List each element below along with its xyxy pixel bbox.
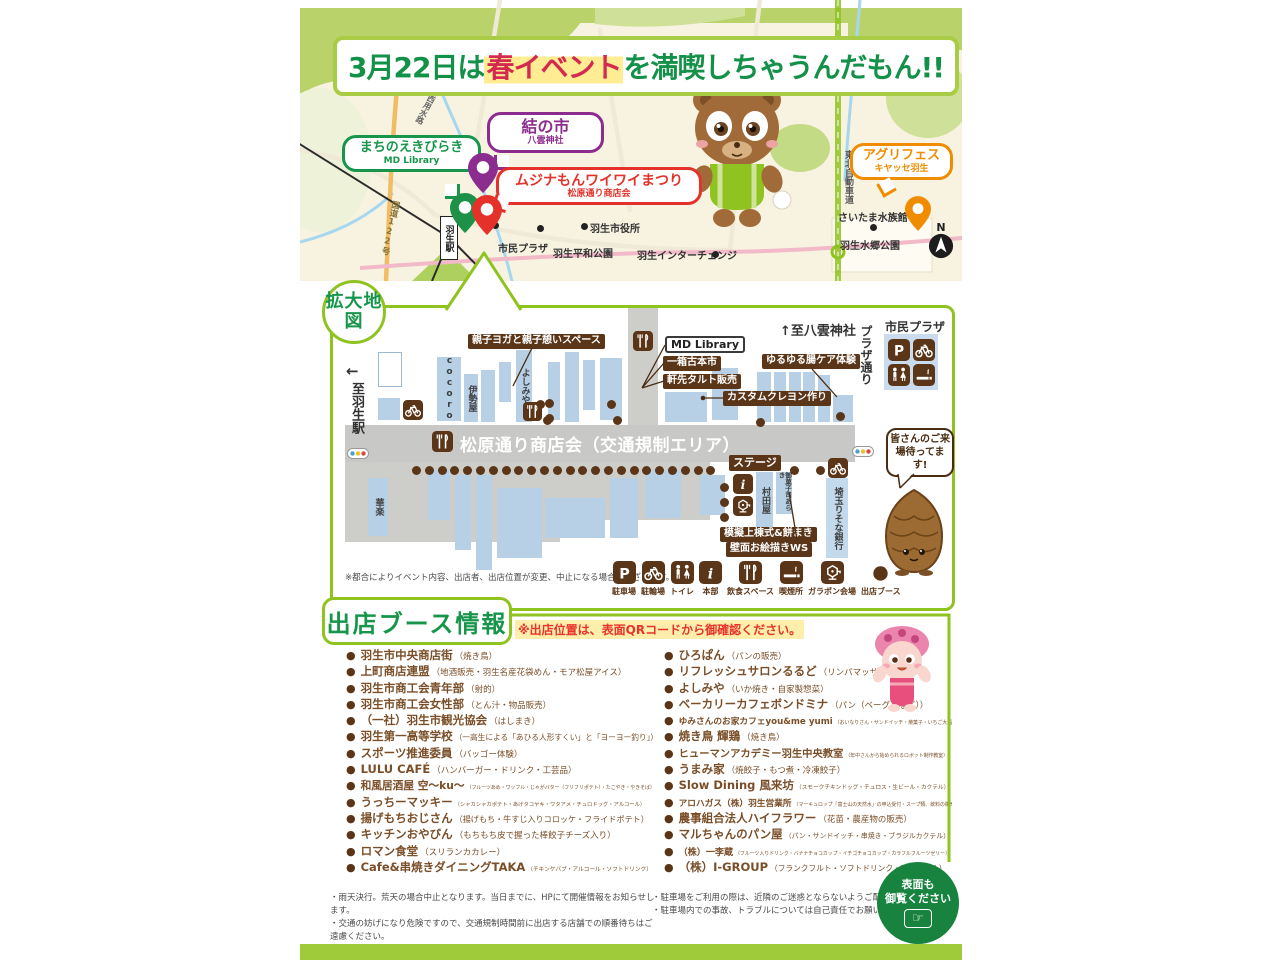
booth-note: （揚げもち・牛すじ入りコロッケ・フライドポテト） — [455, 814, 649, 824]
legend-item: 飲食スペース — [727, 561, 774, 597]
event-label-hekimen: 壁面お絵描きWS — [726, 542, 812, 557]
booth-bullet: ● — [664, 845, 674, 858]
bicycle-icon — [828, 458, 848, 478]
booth-item: ●LULU CAFÉ（ハンバーガー・ドリンク・工芸品） — [346, 760, 658, 776]
building — [481, 370, 495, 422]
building-label: 御菓子司あらき — [778, 472, 791, 514]
building — [545, 498, 605, 538]
title-date: 3月22日は — [348, 46, 484, 86]
event-bubble-mujinamon-fes: ムジナもんワイワイまつり 松原通り商店会 — [496, 167, 702, 205]
shimin-plaza-icons: P — [884, 334, 938, 390]
booth-dot — [836, 412, 845, 421]
booth-dot — [553, 466, 562, 475]
booth-section-heading: 出店ブース情報 — [322, 597, 512, 645]
legend-icon — [671, 561, 694, 584]
building-resona: 埼玉りそな銀行 — [826, 478, 848, 558]
booth-bullet: ● — [346, 763, 356, 776]
footer-note: ・雨天決行。荒天の場合中止となります。当日までに、HPにて開催情報をお知らせしま… — [330, 892, 660, 918]
booth-dot — [756, 418, 765, 427]
booth-item: ●（一社）羽生市観光協会（はしまき） — [346, 711, 658, 727]
booth-bullet: ● — [664, 828, 674, 841]
booth-name: キッチンおやびん — [361, 827, 453, 841]
booth-dot — [617, 466, 626, 475]
plaza-street-label: プラザ通り — [858, 325, 875, 385]
building-label: 村田屋 — [760, 487, 769, 514]
building-label: 伊勢屋 — [467, 385, 476, 412]
booth-note: （花苗・農産物の販売） — [818, 815, 912, 825]
booth-dot — [630, 466, 639, 475]
building — [476, 475, 492, 570]
booth-name: マルちゃんのパン屋 — [679, 827, 783, 841]
legend-icon: P — [613, 561, 636, 584]
bicycle-icon — [403, 400, 423, 420]
svg-text:i: i — [708, 566, 713, 582]
booth-note: （焼餃子・もつ煮・冷凍餃子） — [727, 766, 846, 776]
event-label-yuruyuru: ゆるゆる腸ケア体験 — [762, 354, 860, 369]
booth-bullet: ● — [664, 763, 674, 776]
booth-dot — [566, 466, 575, 475]
booth-note: （もちもち皮で握った棒餃子チーズ入り） — [455, 831, 616, 841]
booth-name: Cafe&串焼きダイニングTAKA — [361, 860, 526, 874]
info-icon: i — [733, 474, 753, 494]
booth-bullet: ● — [346, 779, 356, 792]
legend-label: 駐輪場 — [641, 586, 665, 597]
event-title: 結の市 — [496, 118, 595, 136]
booth-dot — [438, 466, 447, 475]
booth-dot — [425, 466, 434, 475]
event-title: ムジナもんワイワイまつり — [505, 173, 693, 189]
booth-dot — [412, 466, 421, 475]
booth-name: Slow Dining 風来坊 — [679, 778, 794, 792]
map-legend: P 駐車場 駐輪場 トイレ i 本部 飲食スペース — [612, 561, 957, 597]
legend-icon — [642, 561, 665, 584]
food-icon — [432, 431, 453, 452]
booth-item: ●ヒューマンアカデミー羽生中央教室（年中さんから始められるロボット制作教室） — [664, 744, 952, 760]
legend-icon — [869, 561, 892, 584]
map-pin-red — [472, 194, 502, 236]
booth-item: ●羽生市商工会女性部（とん汁・物品販売） — [346, 695, 658, 711]
booth-dot — [681, 466, 690, 475]
booth-note: （スリランカカレー） — [420, 848, 505, 858]
booth-item: ●スポーツ推進委員（バッゴー体験） — [346, 744, 658, 760]
booth-name: ロマン食堂 — [361, 844, 419, 858]
booth-name: よしみや — [679, 681, 725, 695]
event-label-mogi: 模擬上棟式&餅まき — [720, 527, 817, 542]
booth-item: ●マルちゃんのパン屋（パン・サンドイッチ・串焼き・ブラジルカクテル） — [664, 825, 952, 841]
booth-note: （フルーツ入りドリンク・バナナチョコカップ・イチゴチョコカップ・カラフルフルーツ… — [735, 851, 950, 857]
place-label-interchange: 羽生インターチェンジ — [637, 247, 737, 262]
legend-icon — [739, 561, 762, 584]
booth-name: LULU CAFÉ — [361, 762, 431, 776]
legend-label: 駐車場 — [612, 586, 636, 597]
legend-item: 駐輪場 — [641, 561, 665, 597]
place-dot — [870, 224, 877, 231]
event-bubble-agrifes: アグリフェス キヤッセ羽生 — [850, 143, 953, 180]
place-label-shimin-plaza: 市民プラザ — [498, 240, 548, 255]
booth-dot — [816, 466, 825, 475]
booth-item: ●焼き鳥 輝鶏（焼き鳥） — [664, 727, 952, 743]
svg-text:P: P — [619, 566, 630, 582]
legend-icon — [821, 561, 844, 584]
booth-dot — [720, 498, 729, 507]
bicycle-icon — [913, 339, 935, 361]
flyer-page: 3月22日は春イベントを満喫しちゃうんだもん!! まちのえきびらき MD Lib… — [0, 0, 1280, 960]
booth-name: アロハガス（株）羽生営業所 — [679, 799, 792, 809]
building-araki: 御菓子司あらき — [776, 472, 792, 514]
booth-name: （一社）羽生市観光協会 — [361, 713, 488, 727]
legend-label: トイレ — [670, 586, 694, 597]
booth-item: ●羽生市商工会青年部（射的） — [346, 679, 658, 695]
booth-item: ●うまみ家（焼餃子・もつ煮・冷凍餃子） — [664, 760, 952, 776]
booth-name: 羽生市商工会女性部 — [361, 697, 465, 711]
flyer: 3月22日は春イベントを満喫しちゃうんだもん!! まちのえきびらき MD Lib… — [300, 0, 962, 960]
booth-item: ●うっちーマッキー（シャカシャカポテト・あげタコヤキ・ワタアメ・チュロドッグ・ア… — [346, 793, 658, 809]
event-label-furuhon: 一箱古本市 — [663, 356, 721, 371]
booth-bullet: ● — [664, 779, 674, 792]
legend-item: 喫煙所 — [779, 561, 803, 597]
place-label-city-hall: 羽生市役所 — [590, 220, 640, 235]
legend-icon: i — [699, 561, 722, 584]
legend-item: i 本部 — [699, 561, 722, 597]
booth-note: （年中さんから始められるロボット制作教室） — [845, 753, 948, 759]
booth-note: （いか焼き・自家製惣菜） — [727, 685, 829, 695]
building — [378, 352, 402, 387]
food-icon — [633, 331, 653, 351]
legend-label: 出店ブース — [861, 586, 901, 597]
booth-item: ●アロハガス（株）羽生営業所（マーキュロップ「富士山の天然水」の申込受付・スープ… — [664, 793, 952, 809]
to-shrine-label: ↑至八雲神社 — [780, 320, 856, 339]
booth-note: （焼き鳥） — [455, 652, 498, 662]
booth-item: ●上町商店連盟（地酒販売・羽生名産花袋めん・モア松屋アイス） — [346, 662, 658, 678]
booth-item: ●（株）一李蔵（フルーツ入りドリンク・バナナチョコカップ・イチゴチョコカップ・カ… — [664, 842, 952, 858]
title-banner: 3月22日は春イベントを満喫しちゃうんだもん!! — [333, 36, 959, 96]
booth-bullet: ● — [664, 682, 674, 695]
booth-item: ●農事組合法人ハイフラワー（花苗・農産物の販売） — [664, 809, 952, 825]
svg-text:P: P — [893, 343, 903, 359]
booth-dot — [502, 466, 511, 475]
booth-note: （チキンケバブ・アルコール・ソフトドリンク） — [527, 867, 652, 873]
booth-bullet: ● — [346, 649, 356, 662]
booth-name: リフレッシュサロンるるど — [679, 664, 817, 678]
booth-bullet: ● — [346, 828, 356, 841]
pointing-hand-icon: ☞ — [904, 909, 932, 928]
booth-note: （とん汁・物品販売） — [466, 701, 551, 711]
booth-dot — [545, 399, 554, 408]
building — [548, 362, 560, 420]
event-title: アグリフェス — [859, 149, 944, 164]
booth-dot — [720, 483, 729, 492]
booth-list-left: ●羽生市中央商店街（焼き鳥） ●上町商店連盟（地酒販売・羽生名産花袋めん・モア松… — [346, 646, 658, 874]
booth-dot — [607, 400, 616, 409]
toilet-icon — [888, 364, 910, 386]
booth-dot — [720, 513, 729, 522]
booth-note: （地酒販売・羽生名産花袋めん・モア松屋アイス） — [432, 668, 627, 678]
booth-note: （シャカシャカポテト・あげタコヤキ・ワタアメ・チュロドッグ・アルコール） — [455, 802, 646, 808]
back-side-badge: 表面も 御覧ください ☞ — [877, 862, 959, 944]
to-station-label: 至羽生駅 — [347, 382, 366, 434]
building — [378, 398, 400, 420]
legend-item: P 駐車場 — [612, 561, 636, 597]
booth-name: うまみ家 — [679, 762, 725, 776]
event-label-yoga: 親子ヨガと親子憩いスペース — [468, 334, 605, 349]
place-dot — [537, 225, 544, 232]
title-highlight: 春イベント — [484, 46, 623, 86]
booth-note: （パン・サンドイッチ・串焼き・ブラジルカクテル） — [785, 832, 950, 840]
booth-item: ●Slow Dining 風来坊（スモークチキンドッグ・チュロス・生ビール・カク… — [664, 776, 952, 792]
event-title: まちのえきびらき — [351, 141, 472, 156]
booth-bullet: ● — [346, 845, 356, 858]
booth-note: （射的） — [466, 685, 500, 695]
legend-icon — [780, 561, 803, 584]
event-subtitle: キヤッセ羽生 — [859, 164, 944, 174]
booth-note: （はしまき） — [489, 717, 540, 727]
main-street-label: 松原通り商店会（交通規制エリア） — [460, 431, 740, 456]
booth-dot — [790, 466, 799, 475]
compass: N — [928, 222, 954, 263]
place-dot — [581, 223, 588, 230]
booth-item: ●羽生第一高等学校（一高生による「あひる人形すくい」と「ヨーヨー釣り」） — [346, 727, 658, 743]
building — [665, 392, 707, 422]
booth-bullet: ● — [346, 747, 356, 760]
legend-item: ガラポン会場 — [808, 561, 856, 597]
booth-bullet: ● — [664, 714, 674, 727]
booth-name: 上町商店連盟 — [361, 664, 430, 678]
booth-note: （おいなりさん・サンドイッチ・焼菓子・いちご大福・ハンバーガー・ピクルス） — [835, 720, 952, 726]
welcome-bubble: 皆さんのご来場待ってます! — [886, 428, 954, 477]
booth-name: 羽生市商工会青年部 — [361, 681, 465, 695]
booth-bullet: ● — [346, 796, 356, 809]
footer-note: ・交通の妨げになり危険ですので、交通規制時間前に出店する店舗での順番待ちはご遠慮… — [330, 918, 660, 944]
shimin-plaza-label: 市民プラザ — [885, 318, 945, 335]
detail-map-badge: 拡大地図 — [322, 280, 386, 344]
booth-item: ●羽生市中央商店街（焼き鳥） — [346, 646, 658, 662]
booth-name: ベーカリーカフェボンドミナ — [679, 697, 829, 711]
booth-item: ●ロマン食堂（スリランカカレー） — [346, 842, 658, 858]
bottom-green-bar — [300, 944, 962, 960]
to-station-arrow: ← — [346, 362, 359, 380]
booth-dot — [668, 466, 677, 475]
booth-note: （ハンバーガー・ドリンク・工芸品） — [432, 766, 576, 776]
event-bubble-machinoeki: まちのえきびらき MD Library — [342, 135, 481, 172]
booth-bullet: ● — [664, 861, 674, 874]
building-cocoro: cocoro — [437, 357, 461, 421]
booth-bullet: ● — [664, 730, 674, 743]
booth-dot — [613, 416, 622, 425]
booth-note: （一高生による「あひる人形すくい」と「ヨーヨー釣り」） — [455, 733, 658, 742]
booth-dot — [476, 466, 485, 475]
booth-note: （パンの販売） — [727, 652, 787, 662]
back-side-line1: 表面も — [902, 878, 935, 892]
booth-name: 揚げもちおじさん — [361, 811, 453, 825]
event-subtitle: MD Library — [351, 156, 472, 166]
traffic-light-icon — [347, 448, 369, 459]
building — [610, 478, 638, 538]
booth-note: （スモークチキンドッグ・チュロス・生ビール・カクテル） — [796, 785, 949, 791]
booth-dot — [545, 414, 554, 423]
booth-bullet: ● — [346, 714, 356, 727]
booth-item: ●キッチンおやびん（もちもち皮で握った棒餃子チーズ入り） — [346, 825, 658, 841]
legend-label: 喫煙所 — [779, 586, 803, 597]
event-label-md-library: MD Library — [665, 336, 745, 353]
booth-bullet: ● — [346, 861, 356, 874]
booth-bullet: ● — [664, 665, 674, 678]
legend-item: トイレ — [670, 561, 694, 597]
booth-bullet: ● — [664, 649, 674, 662]
booth-item: ●Cafe&串焼きダイニングTAKA（チキンケバブ・アルコール・ソフトドリンク） — [346, 858, 658, 874]
building — [428, 470, 450, 520]
mascot-mujinamon — [672, 76, 802, 236]
booth-item: ●和風居酒屋 空〜ku〜（フルーツあめ・ワッフル・じゃがバター（フリフリポテト）… — [346, 776, 658, 792]
cross-road — [628, 308, 658, 425]
booth-name: 農事組合法人ハイフラワー — [679, 811, 817, 825]
booth-bullet: ● — [664, 812, 674, 825]
booth-dot — [604, 466, 613, 475]
booth-notice: ※出店位置は、表面QRコードから御確認ください。 — [515, 620, 804, 639]
booth-bullet: ● — [346, 698, 356, 711]
compass-icon — [928, 233, 954, 259]
food-icon — [523, 402, 542, 421]
event-bubble-yuinoichi: 結の市 八雲神社 — [487, 112, 604, 153]
booth-item: ●揚げもちおじさん（揚げもち・牛すじ入りコロッケ・フライドポテト） — [346, 809, 658, 825]
smoking-icon — [913, 364, 935, 386]
place-label-suigo-park: 羽生水郷公園 — [840, 237, 900, 252]
map-pin-orange — [905, 195, 931, 232]
booth-bullet: ● — [346, 682, 356, 695]
event-label-crayon: カスタムクレヨン作り — [723, 391, 831, 406]
building — [499, 362, 511, 402]
building-label: 華楽 — [374, 498, 383, 516]
legend-label: ガラポン会場 — [808, 586, 856, 597]
booth-dot — [694, 466, 703, 475]
event-subtitle: 八雲神社 — [496, 136, 595, 146]
building-label: よしみや — [520, 368, 529, 404]
garapon-icon — [733, 496, 753, 516]
booth-name: ヒューマンアカデミー羽生中央教室 — [679, 748, 844, 760]
booth-bullet: ● — [346, 665, 356, 678]
booth-bullet: ● — [664, 698, 674, 711]
booth-dot — [540, 466, 549, 475]
booth-note: （バッゴー体験） — [454, 750, 522, 760]
booth-name: 和風居酒屋 空〜ku〜 — [361, 779, 465, 792]
back-side-line2: 御覧ください — [885, 892, 951, 906]
legend-label: 飲食スペース — [727, 586, 774, 597]
building-label: 埼玉りそな銀行 — [833, 487, 842, 550]
building — [565, 352, 579, 422]
building — [600, 358, 622, 420]
booth-name: （株）I-GROUP — [679, 860, 768, 874]
building-iseya: 伊勢屋 — [464, 374, 478, 422]
building — [497, 488, 542, 558]
event-subtitle: 松原通り商店会 — [505, 189, 693, 199]
legend-label: 本部 — [703, 586, 719, 597]
building — [700, 475, 725, 515]
booth-name: スポーツ推進委員 — [361, 746, 453, 760]
place-label-heiwa-park: 羽生平和公園 — [553, 245, 613, 260]
booth-bullet: ● — [664, 796, 674, 809]
booth-dot — [489, 466, 498, 475]
event-label-tart: 軒先タルト販売 — [663, 374, 741, 389]
booth-note: （マーキュロップ「富士山の天然水」の申込受付・スープ類、飲料の販売） — [794, 802, 952, 808]
booth-name: ひろぱん — [679, 648, 725, 662]
building-label: cocoro — [445, 356, 454, 422]
building — [455, 475, 471, 550]
booth-bullet: ● — [346, 730, 356, 743]
building — [583, 360, 595, 410]
parking-icon: P — [888, 339, 910, 361]
building-karaku: 華楽 — [368, 478, 388, 536]
booth-name: ゆみさんのお家カフェyou&me yumi — [679, 717, 833, 727]
mascot-pink — [852, 614, 952, 716]
legend-item: 出店ブース — [861, 561, 901, 597]
map-pin-purple — [468, 152, 498, 194]
booth-note: （フルーツあめ・ワッフル・じゃがバター（フリフリポテト）・たこやき・やきそば） — [467, 785, 655, 791]
traffic-light-icon — [852, 446, 874, 457]
building — [645, 470, 681, 518]
booth-name: 羽生市中央商店街 — [361, 648, 453, 662]
building-murataya: 村田屋 — [756, 472, 773, 528]
booth-name: 羽生第一高等学校 — [361, 729, 453, 743]
svg-text:i: i — [741, 477, 746, 492]
place-dot — [712, 251, 719, 258]
place-label-aquarium: さいたま水族館 — [838, 209, 908, 224]
booth-bullet: ● — [346, 812, 356, 825]
booth-bullet: ● — [664, 747, 674, 760]
event-label-stage: ステージ — [729, 455, 781, 471]
booth-name: うっちーマッキー — [361, 795, 453, 809]
compass-n-label: N — [928, 222, 954, 233]
booth-name: （株）一李蔵 — [679, 848, 733, 858]
booth-note: （焼き鳥） — [742, 733, 785, 743]
booth-name: 焼き鳥 輝鶏 — [679, 729, 741, 743]
title-tail: を満喫しちゃうんだもん!! — [623, 46, 944, 86]
